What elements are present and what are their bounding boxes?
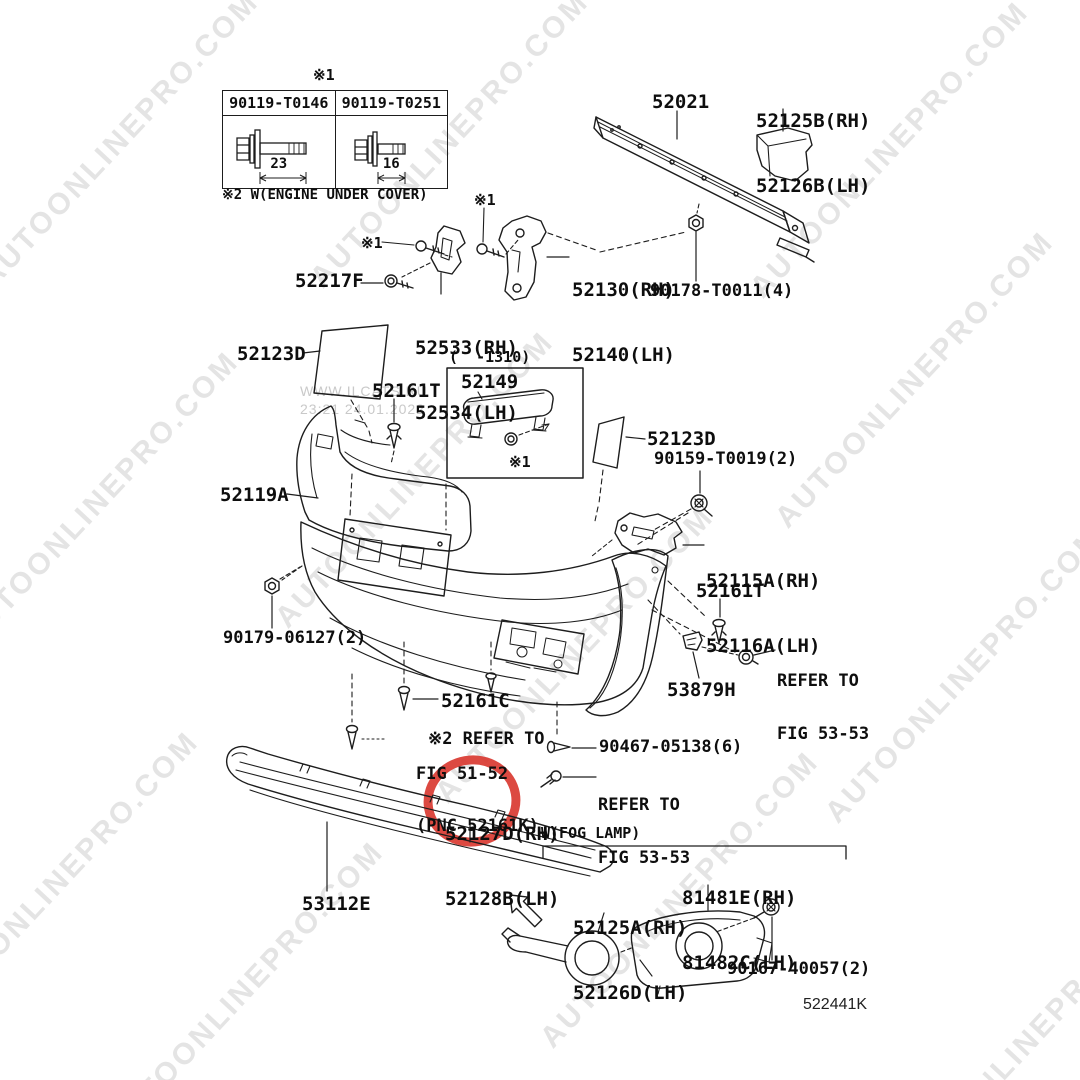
part-label-line: 52126D(LH) [573, 983, 687, 1005]
clip-52161t-icon [387, 399, 401, 464]
leader-52119a [287, 494, 318, 498]
part-label-90167: 90167-40057(2) [727, 961, 870, 979]
refer-note-line: REFER TO [777, 673, 869, 691]
bracket-52533-drawing [431, 226, 465, 294]
note-asterisk-1: ※1 [313, 67, 335, 83]
figure-code: 522441K [803, 996, 867, 1014]
clip-52161c-icon [399, 687, 439, 711]
part-label-52119a: 52119A [220, 485, 289, 507]
part-label-90159: 90159-T0019(2) [654, 451, 797, 469]
fog-lamp-note: W(FOG LAMP) [541, 825, 640, 841]
bolt-icon [382, 241, 444, 254]
part-label-90467: 90467-05138(6) [599, 739, 742, 757]
note-asterisk-1: ※1 [474, 192, 496, 208]
note-asterisk-1: ※1 [361, 235, 383, 251]
bolt-size-table: 90119-T0146 23 90119-T0251 [222, 90, 448, 189]
part-label-line: 52534(LH) [415, 403, 518, 425]
table-part-number: 90119-T0251 [336, 91, 448, 116]
refer-note-line: FIG 53-53 [777, 726, 869, 744]
clip-icon [347, 726, 386, 750]
bolt-length-dimension: 23 [270, 156, 287, 172]
refer-note-line: REFER TO [598, 797, 690, 815]
table-column: 90119-T0146 23 [223, 91, 335, 188]
part-label-line: 52125A(RH) [573, 918, 687, 940]
bolt-length-dimension: 16 [383, 156, 400, 172]
nut-90178-icon [689, 204, 703, 281]
part-label-line: 52128B(LH) [445, 889, 559, 911]
refer-note-line: ※2 REFER TO [428, 729, 545, 749]
part-label-line: 52140(LH) [572, 345, 675, 367]
part-label-81481e-81482c: 81481E(RH) 81482C(LH) [682, 845, 796, 1017]
table-column: 90119-T0251 16 [335, 91, 448, 188]
part-label-52123d-left: 52123D [237, 344, 306, 366]
part-label-53879h: 53879H [667, 680, 736, 702]
part-label-52161t-2: 52161T [696, 581, 765, 603]
part-label-line: 52130(RH) [572, 280, 675, 302]
refer-note-line: FIG 53-53 [598, 850, 690, 868]
screw-90159-icon [635, 471, 712, 546]
bolt-icon [341, 116, 441, 186]
part-label-52125b-52126b: 52125B(RH) 52126B(LH) [756, 68, 870, 240]
refer-note-fig53-53-right: REFER TO FIG 53-53 [777, 638, 869, 778]
part-label-52161t-1: 52161T [372, 381, 441, 403]
table-part-number: 90119-T0146 [223, 91, 335, 116]
part-label-90179: 90179-06127(2) [223, 630, 366, 648]
bolt-icon [229, 116, 329, 186]
part-label-52161c: 52161C [441, 691, 510, 713]
part-label-52021: 52021 [652, 92, 709, 114]
engine-under-cover-footnote: ※2 W(ENGINE UNDER COVER) [222, 187, 428, 203]
part-label-line: 52125B(RH) [756, 111, 870, 133]
sticker-52123d-right-drawing [593, 417, 645, 521]
part-label-52127d-52128b-highlighted: 52127D(RH) 52128B(LH) [445, 781, 559, 953]
part-label-52130-52140: 52130(RH) 52140(LH) [572, 237, 675, 409]
note-asterisk-1: ※1 [509, 454, 531, 470]
part-label-52149: 52149 [461, 372, 518, 394]
production-range-note: ( -1310) [449, 349, 530, 365]
part-label-52123d-right: 52123D [647, 429, 716, 451]
part-label-52125a-52126d: 52125A(RH) 52126D(LH) [573, 875, 687, 1047]
bolt-52217f-icon [361, 263, 430, 288]
part-label-line: 81481E(RH) [682, 888, 796, 910]
part-label-line: 52126B(LH) [756, 176, 870, 198]
parts-diagram-page: AUTOONLINEPRO.COM AUTOONLINEPRO.COM AUTO… [0, 0, 1080, 1080]
nut-90179-icon [265, 567, 300, 628]
part-label-52217f: 52217F [295, 271, 364, 293]
part-label-53112e: 53112E [302, 894, 371, 916]
clip-90467-icon [548, 742, 597, 753]
